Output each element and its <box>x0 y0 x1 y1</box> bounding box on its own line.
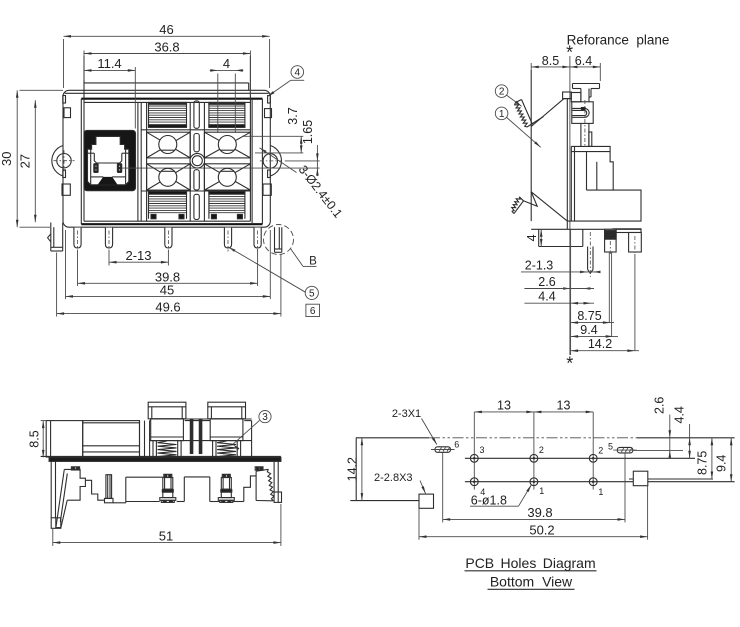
svg-text:B: B <box>309 255 317 267</box>
svg-text:4: 4 <box>295 68 301 79</box>
svg-text:49.6: 49.6 <box>155 300 180 315</box>
svg-text:3: 3 <box>480 445 485 455</box>
svg-text:6: 6 <box>310 306 316 317</box>
svg-text:PCB Holes Diagram: PCB Holes Diagram <box>465 555 595 571</box>
svg-text:2.6: 2.6 <box>538 275 555 289</box>
svg-text:46: 46 <box>159 22 173 37</box>
svg-text:6: 6 <box>454 439 459 449</box>
svg-text:8.5: 8.5 <box>542 54 559 68</box>
svg-text:27: 27 <box>18 154 33 168</box>
svg-text:4.4: 4.4 <box>672 406 686 423</box>
svg-text:Reforance plane: Reforance plane <box>567 33 670 48</box>
svg-text:50.2: 50.2 <box>529 523 554 538</box>
svg-text:4.4: 4.4 <box>538 290 555 304</box>
svg-text:9.4: 9.4 <box>580 323 597 337</box>
svg-text:8.75: 8.75 <box>695 451 709 475</box>
svg-text:13: 13 <box>497 399 511 413</box>
svg-text:4: 4 <box>223 56 230 71</box>
svg-text:6-ø1.8: 6-ø1.8 <box>471 493 507 507</box>
svg-text:1: 1 <box>598 487 603 497</box>
svg-text:8.75: 8.75 <box>577 309 601 323</box>
svg-text:2-13: 2-13 <box>125 248 151 263</box>
svg-text:45: 45 <box>160 283 174 298</box>
svg-text:1.65: 1.65 <box>301 120 315 144</box>
svg-text:5: 5 <box>309 289 315 300</box>
svg-text:Bottom View: Bottom View <box>490 574 573 590</box>
svg-text:3: 3 <box>262 412 268 423</box>
svg-text:2.6: 2.6 <box>653 397 667 414</box>
svg-text:9.4: 9.4 <box>715 455 729 472</box>
svg-text:14.2: 14.2 <box>345 457 359 481</box>
svg-text:5: 5 <box>608 441 613 451</box>
svg-text:2-2.8X3: 2-2.8X3 <box>374 472 413 484</box>
svg-text:51: 51 <box>159 528 173 543</box>
svg-text:39.8: 39.8 <box>527 505 552 520</box>
svg-text:6.4: 6.4 <box>575 54 592 68</box>
svg-text:14.2: 14.2 <box>588 337 612 351</box>
svg-text:*: * <box>566 354 573 374</box>
svg-text:36.8: 36.8 <box>154 40 179 55</box>
svg-text:13: 13 <box>557 399 571 413</box>
svg-text:11.4: 11.4 <box>97 56 121 71</box>
svg-text:2: 2 <box>598 446 603 456</box>
svg-text:8.5: 8.5 <box>28 430 42 447</box>
svg-text:1: 1 <box>539 486 544 496</box>
svg-text:2-1.3: 2-1.3 <box>525 258 554 272</box>
svg-text:2: 2 <box>539 445 544 455</box>
svg-text:2-3X1: 2-3X1 <box>392 408 421 420</box>
svg-text:3.7: 3.7 <box>286 107 300 124</box>
svg-text:1: 1 <box>499 109 505 120</box>
svg-text:4: 4 <box>525 234 539 241</box>
svg-text:2: 2 <box>499 87 505 98</box>
svg-text:30: 30 <box>0 152 14 166</box>
